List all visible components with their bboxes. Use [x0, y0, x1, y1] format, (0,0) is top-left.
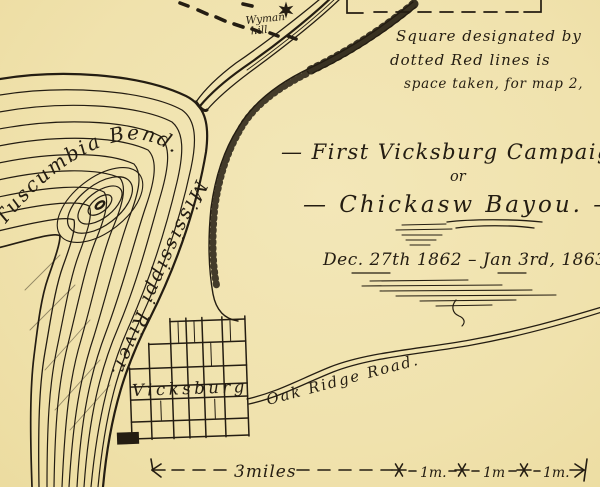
scale-1m-label: 1m.: [420, 465, 447, 481]
map-title: — First Vicksburg Campaign — or — Chicka…: [281, 140, 600, 270]
note-line3: space taken, for map 2,: [404, 76, 583, 92]
hill-label: Wyman hill: [245, 11, 287, 38]
title-line3: — Chickasw Bayou. —: [303, 192, 600, 218]
bluff-line: [209, 68, 310, 321]
scale-left-arrow-icon: [151, 459, 165, 477]
svg-text:hill: hill: [250, 24, 268, 38]
city-label: Vicksburg: [132, 377, 248, 400]
note-line2: dotted Red lines is: [390, 51, 551, 69]
scale-star-icon: [455, 464, 469, 476]
hatching-below-date: [362, 280, 556, 326]
title-line1: — First Vicksburg Campaign —: [281, 140, 600, 164]
date-range: Dec. 27th 1862 – Jan 3rd, 1863: [322, 250, 600, 270]
note-line1: Square designated by: [396, 27, 582, 45]
scale-1m-label: 1m.: [543, 465, 570, 481]
bluff-hatch-marks: [213, 74, 306, 288]
scale-1m-label: 1m: [483, 465, 505, 481]
road-label: Oak Ridge Road.: [264, 351, 421, 409]
title-line2: or: [450, 169, 467, 185]
map-drawing: Tuscumbia Bend. Mississippi River. Wyman…: [0, 0, 600, 487]
scale-star-icon: [392, 464, 406, 476]
mississippi-river-label: Mississippi River.: [105, 176, 212, 382]
map2-dashed-outline: [347, 0, 541, 13]
hatching-above-date: [396, 224, 452, 245]
scale-star-icon: [517, 464, 531, 476]
map2-note: Square designated by dotted Red lines is…: [390, 27, 583, 92]
city-block-filled: [117, 432, 139, 445]
tuscumbia-bend-label: Tuscumbia Bend.: [0, 121, 186, 229]
title-underline-flourish: [447, 220, 542, 228]
map-canvas: Tuscumbia Bend. Mississippi River. Wyman…: [0, 0, 600, 487]
scale-right-arrow-icon: [570, 459, 587, 481]
scale-bar: [151, 459, 587, 481]
scale-miles-label: 3miles: [234, 462, 297, 482]
